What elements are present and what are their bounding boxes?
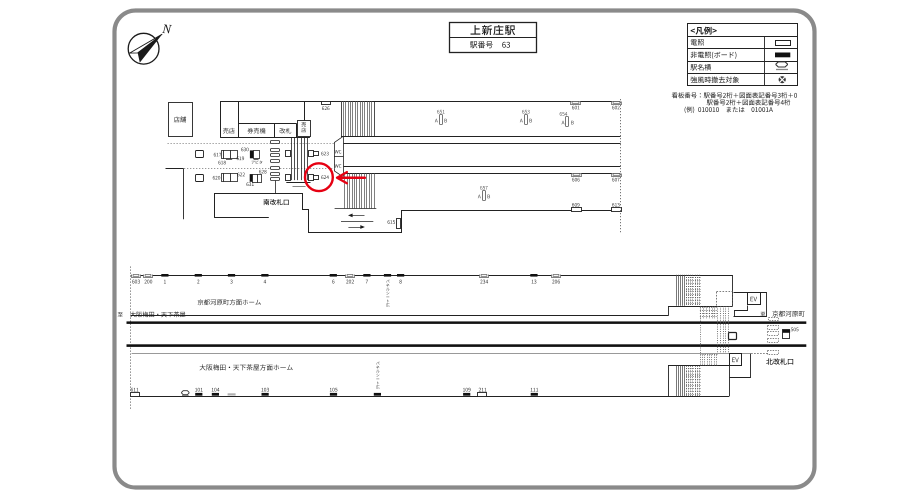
svg-text:N: N	[161, 21, 173, 37]
